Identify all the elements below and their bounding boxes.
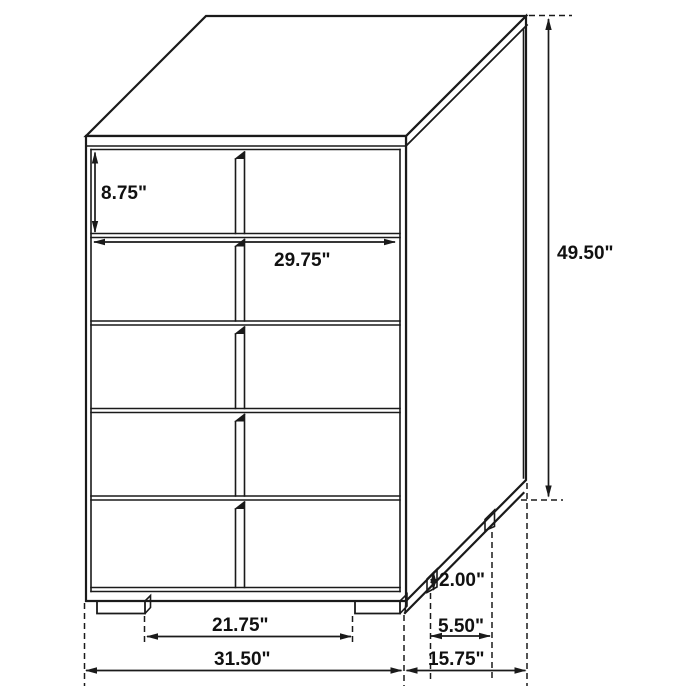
overall-width-label: 31.50" (214, 649, 271, 670)
overall-height-label: 49.50" (557, 243, 614, 264)
chest-outline (86, 16, 527, 613)
diagram-canvas: 8.75" 29.75" 49.50" 2.00" 5.50" 21.75" 3… (0, 0, 700, 700)
front-panel (86, 136, 406, 601)
front-left-leg (97, 601, 145, 614)
front-right-leg (355, 601, 400, 614)
side-leg-spacing-label: 5.50" (438, 616, 484, 637)
drawer-height-label: 8.75" (101, 183, 147, 204)
overall-depth-label: 15.75" (428, 649, 485, 670)
drawer-width-label: 29.75" (274, 250, 331, 271)
front-leg-spacing-label: 21.75" (212, 615, 269, 636)
leg-height-label: 2.00" (439, 570, 485, 591)
chest-dimension-diagram: 8.75" 29.75" 49.50" 2.00" 5.50" 21.75" 3… (0, 0, 700, 700)
